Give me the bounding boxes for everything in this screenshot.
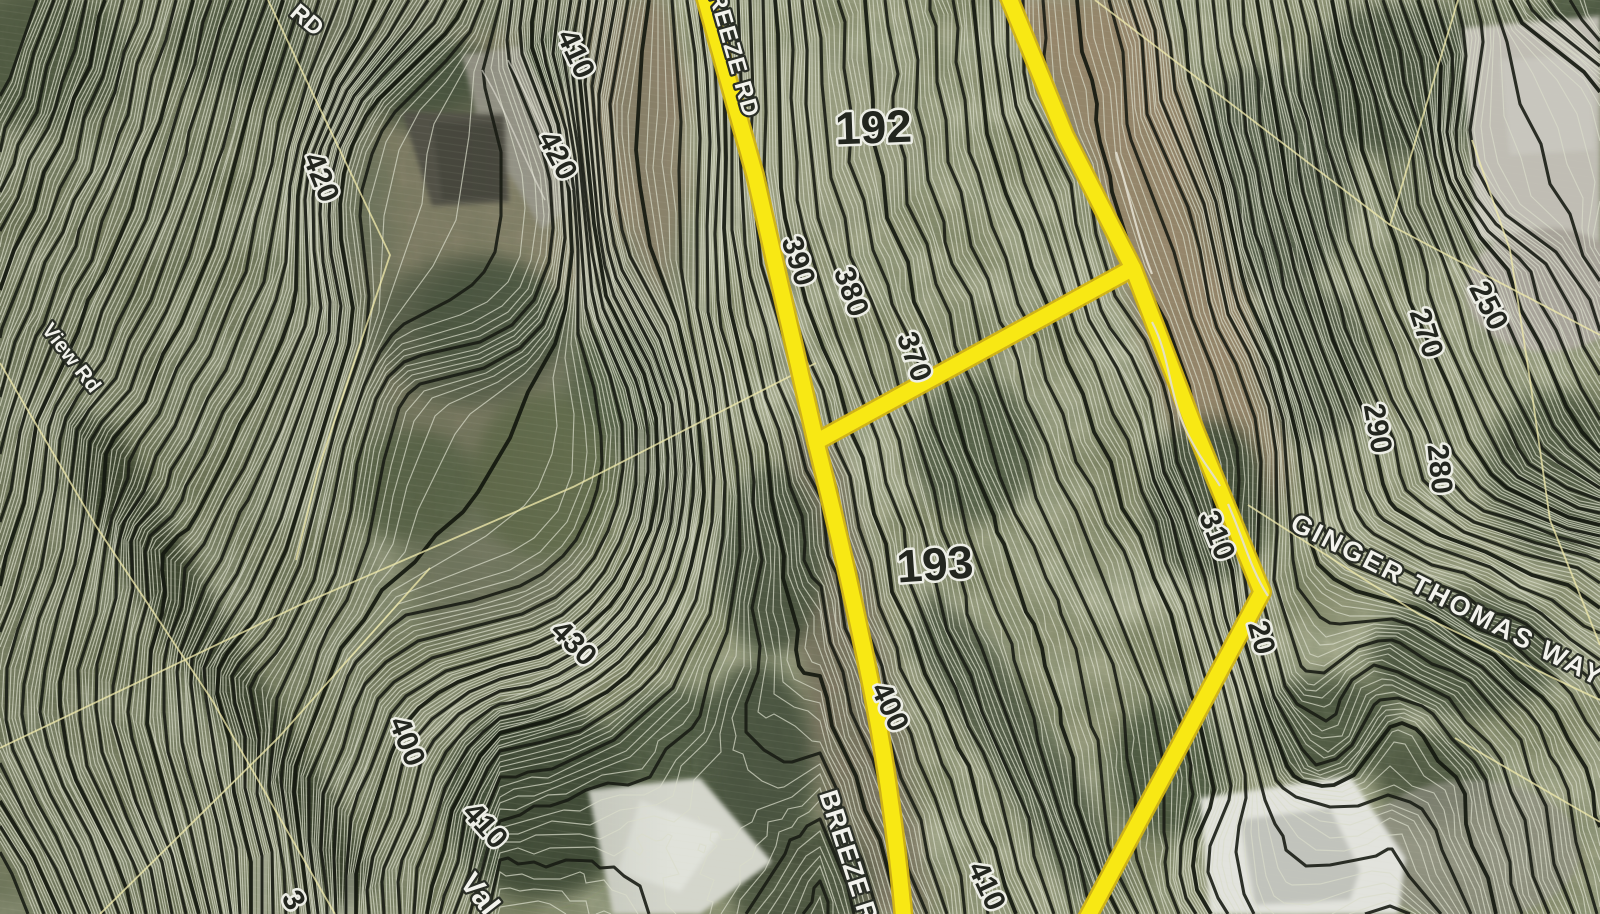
svg-text:192: 192 bbox=[834, 100, 913, 155]
svg-text:193: 193 bbox=[895, 535, 975, 592]
svg-text:280: 280 bbox=[1420, 442, 1458, 495]
